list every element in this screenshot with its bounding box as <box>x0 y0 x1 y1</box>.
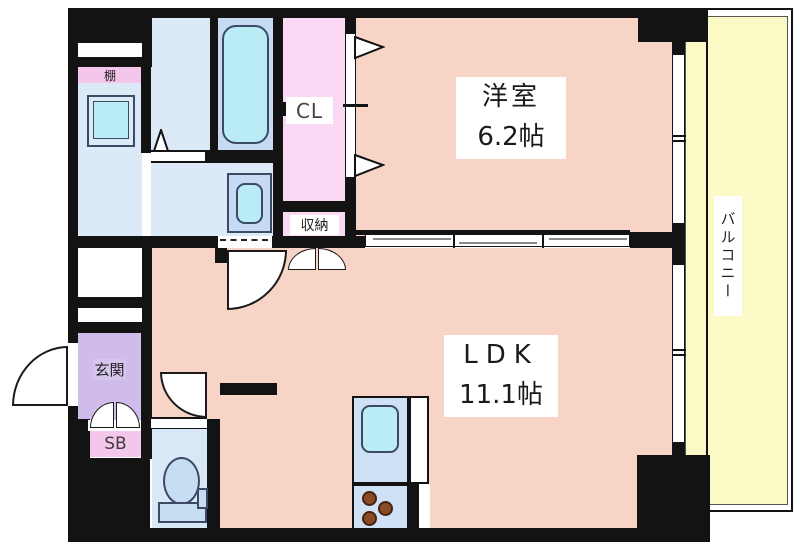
wall <box>68 458 150 538</box>
washing-machine-pan <box>87 95 135 147</box>
entrance-label: 玄関 <box>78 358 141 380</box>
sliding-door-divider <box>542 235 544 248</box>
wall <box>207 419 220 528</box>
stove-burner <box>378 501 393 516</box>
floor-plan: 棚 <box>0 0 800 552</box>
bathroom-door-triangle-icon <box>153 129 170 153</box>
wall <box>141 333 152 429</box>
wall <box>141 8 151 153</box>
closet-label-box: CL <box>286 97 333 124</box>
ldk-label-box: LDK 11.1帖 <box>444 335 558 417</box>
shoe-box: SB <box>90 431 141 457</box>
wall <box>68 528 710 542</box>
folding-door-triangle-icon <box>354 36 385 60</box>
wall <box>283 201 345 212</box>
washing-machine-pan-inner <box>93 101 129 139</box>
window <box>672 54 685 224</box>
wall <box>205 150 273 163</box>
sliding-door <box>365 234 630 247</box>
shelf-strip: 棚 <box>78 67 142 83</box>
pipe-space <box>78 248 142 297</box>
window-sash-line <box>673 135 686 137</box>
kitchen-counter-edge <box>409 396 429 484</box>
shoe-box-label: SB <box>104 434 126 454</box>
western-room-name: 洋室 <box>456 77 566 117</box>
entrance-door-opening <box>68 343 78 406</box>
ldk-area: 11.1帖 <box>444 375 558 415</box>
window <box>672 264 685 443</box>
stove-burner <box>362 491 377 506</box>
ldk-name: LDK <box>444 335 558 375</box>
toilet-side-unit <box>197 488 208 509</box>
folding-door-triangle-icon <box>354 154 385 178</box>
sliding-door-divider <box>453 235 455 248</box>
kitchen-side-gap <box>419 484 430 528</box>
storage-label-box: 収納 <box>290 215 339 235</box>
entrance-door-swing <box>12 346 68 406</box>
kitchen-sink <box>361 405 399 453</box>
washroom-opening <box>218 236 272 248</box>
closet-door-center-line <box>343 104 368 107</box>
wall <box>273 18 283 248</box>
window-sash-line <box>673 349 686 351</box>
exterior-window <box>78 43 142 57</box>
stove-burner <box>362 511 377 526</box>
washbasin-unit <box>227 173 272 233</box>
wall <box>672 224 685 264</box>
wall <box>220 383 277 395</box>
shelf-label: 棚 <box>104 67 116 84</box>
sliding-door-panel <box>373 238 451 240</box>
wall <box>68 419 90 458</box>
entrance-label-text: 玄関 <box>93 359 125 380</box>
wall <box>638 8 708 42</box>
western-room-area: 6.2帖 <box>456 117 566 157</box>
sliding-door-panel <box>549 238 627 240</box>
balcony-railing <box>706 8 793 512</box>
wall <box>672 42 685 54</box>
washroom-floor <box>78 67 142 236</box>
sliding-door-panel <box>459 242 537 244</box>
window-sash-line <box>673 354 686 356</box>
window-sash-line <box>673 140 686 142</box>
wall <box>637 455 710 538</box>
wall <box>409 484 419 530</box>
sliding-partition-dashed-line <box>220 239 268 241</box>
toilet-bowl <box>163 457 200 505</box>
wall <box>68 8 708 18</box>
wall <box>345 18 356 33</box>
wall <box>141 429 152 459</box>
pipe-space <box>78 308 142 322</box>
wall <box>210 8 218 153</box>
kitchen-stove <box>352 484 409 530</box>
storage-label: 収納 <box>301 215 329 235</box>
washbasin-bowl <box>236 183 263 224</box>
western-room-label-box: 洋室 6.2帖 <box>456 77 566 159</box>
closet-label: CL <box>296 99 323 123</box>
kitchen-counter <box>352 396 409 484</box>
bathtub <box>222 25 269 144</box>
